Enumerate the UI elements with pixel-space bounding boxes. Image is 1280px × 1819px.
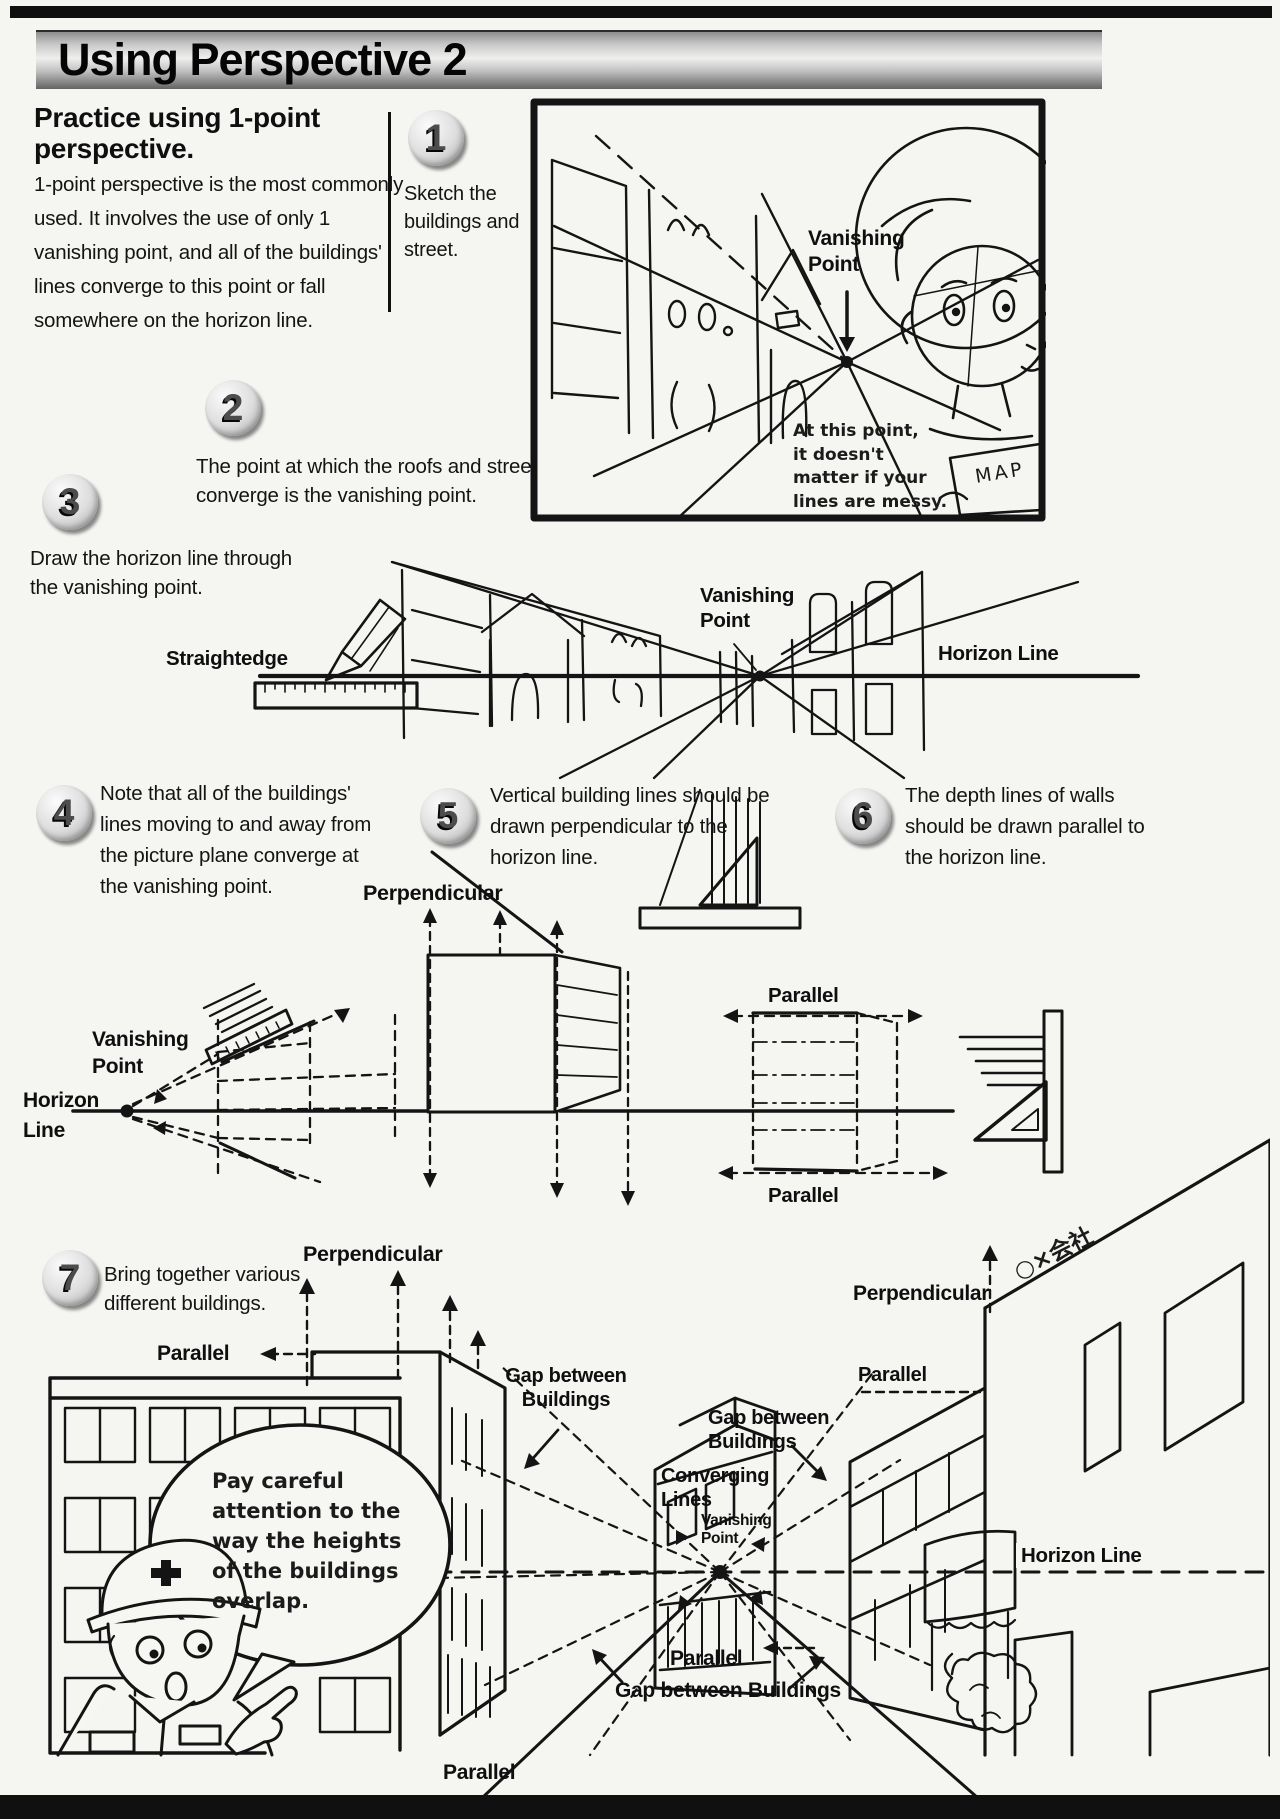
step-2-text: The point at which the roofs and street … <box>196 452 537 510</box>
step6-parallel-top-label: Parallel <box>768 983 839 1008</box>
scene-vanishing-point-label: Vanishing Point <box>701 1512 772 1548</box>
scene-parallel-center-label: Parallel <box>670 1646 742 1672</box>
scene-parallel-right-label: Parallel <box>858 1363 927 1387</box>
step-1-text: Sketch the buildings and street. <box>404 180 519 264</box>
page-title: Using Perspective 2 <box>36 32 1102 88</box>
scene-converging-lines-label: Converging Lines <box>661 1464 769 1513</box>
intro-divider <box>388 112 391 312</box>
scene-gap-bottom-label: Gap between Buildings <box>615 1678 841 1704</box>
step3-horizon-line-label: Horizon Line <box>938 641 1059 666</box>
scene-parallel-bottom-label: Parallel <box>443 1760 515 1786</box>
step3-straightedge-label: Straightedge <box>166 646 288 671</box>
page-top-rule <box>10 6 1272 18</box>
scene-gap1-label: Gap between Buildings <box>498 1364 634 1413</box>
step-badge-3: 3 <box>42 474 98 530</box>
step3-vanishing-point-label: Vanishing Point <box>700 583 794 633</box>
intro-body: 1-point perspective is the most commonly… <box>34 168 424 338</box>
step-badge-2: 2 <box>205 380 261 436</box>
panel1-vanishing-point-label: Vanishing Point <box>808 226 905 277</box>
scene-gap2-label: Gap between Buildings <box>708 1406 829 1455</box>
page-bottom-rule <box>0 1795 1280 1819</box>
scene-horizon-line-label: Horizon Line <box>1016 1543 1147 1568</box>
panel1-illustration <box>530 98 1046 522</box>
book-page: Using Perspective 2 Practice using 1-poi… <box>0 0 1280 1819</box>
scene-perpendicular-left-label: Perpendicular <box>303 1241 442 1267</box>
scene-perpendicular-right-label: Perpendicular <box>853 1281 989 1307</box>
intro-heading: Practice using 1-point perspective. <box>34 102 320 164</box>
scene-speech-bubble-text: Pay careful attention to the way the hei… <box>212 1466 401 1616</box>
scene-parallel-left-label: Parallel <box>157 1341 229 1367</box>
panel1-note: At this point, it doesn't matter if your… <box>793 420 947 514</box>
step4-vanishing-point-label: Vanishing Point <box>92 1026 189 1080</box>
step-badge-1: 1 <box>408 110 464 166</box>
step5-perpendicular-label: Perpendicular <box>363 880 502 906</box>
title-bar: Using Perspective 2 <box>36 30 1102 89</box>
